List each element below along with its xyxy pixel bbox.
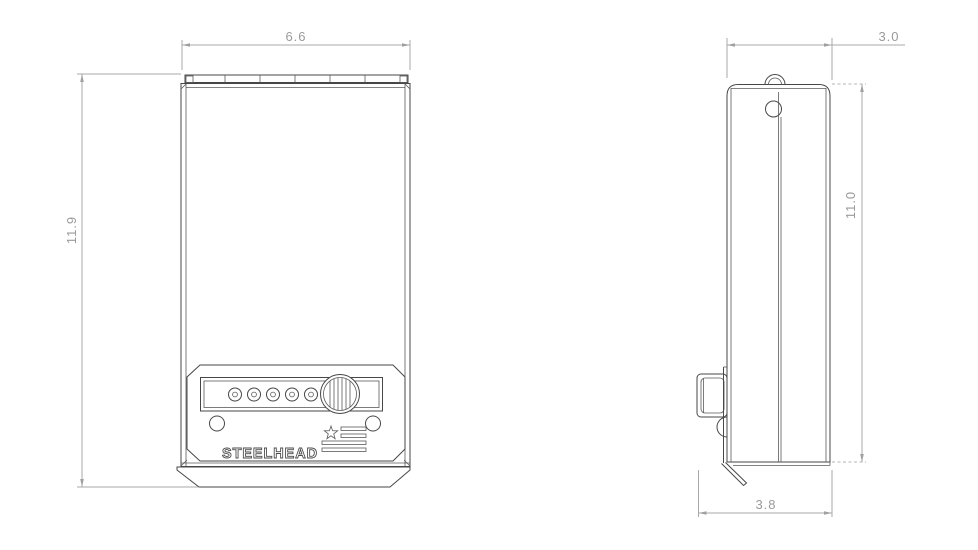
hinge-end-cap-left	[186, 76, 193, 83]
hinge-pin-circle	[766, 101, 782, 117]
drawing-canvas: STEELHEAD	[0, 0, 978, 550]
side-view	[697, 75, 830, 486]
base-bracket	[177, 467, 410, 487]
dim-label-front-width: 6.6	[285, 29, 306, 44]
technical-drawing: STEELHEAD	[0, 0, 978, 550]
front-body	[181, 84, 410, 467]
hinge-bar	[185, 75, 408, 83]
dim-label-side-depth: 3.0	[878, 29, 899, 44]
dim-label-side-height: 11.0	[843, 191, 858, 219]
hinge-knuckle	[765, 75, 785, 85]
dimension-front-height: 11.9	[64, 74, 198, 487]
dimension-side-total-depth: 3.8	[699, 470, 833, 517]
hinge-end-cap-right	[400, 76, 407, 83]
dim-label-side-total-depth: 3.8	[755, 497, 776, 512]
dimension-side-depth: 3.0	[727, 29, 905, 80]
dimension-side-height: 11.0	[832, 84, 866, 462]
latch-cam-arc	[717, 417, 727, 437]
brand-text: STEELHEAD	[222, 445, 318, 462]
latch-knob[interactable]	[697, 374, 727, 417]
dim-label-front-height: 11.9	[64, 216, 79, 244]
dimension-front-width: 6.6	[182, 29, 410, 70]
front-view: STEELHEAD	[177, 75, 410, 487]
dial-knob[interactable]	[321, 375, 360, 414]
